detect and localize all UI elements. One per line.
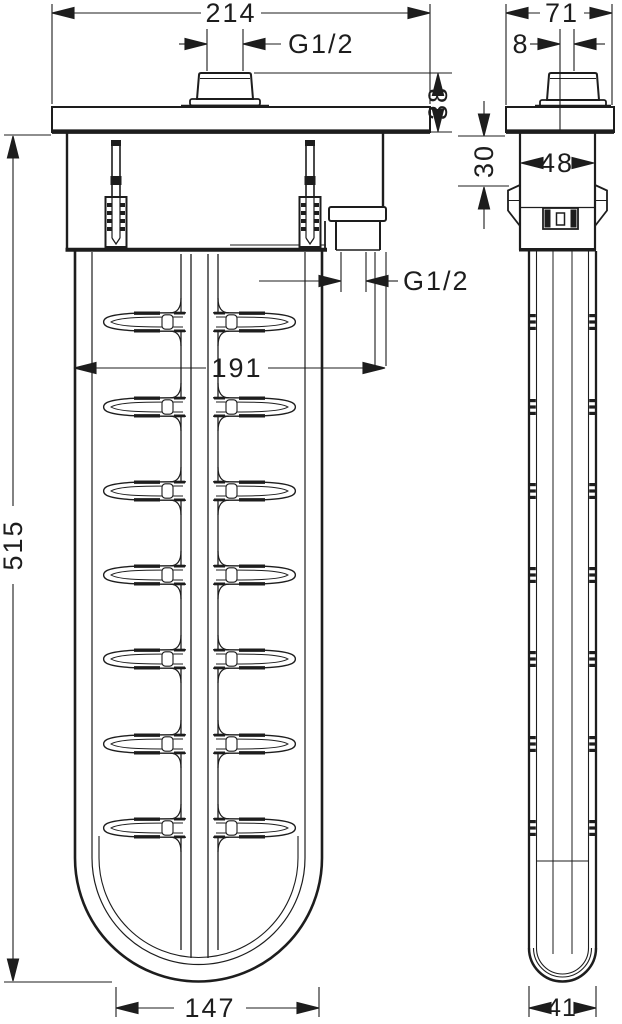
- dim-thread-top-label: G1/2: [288, 29, 355, 59]
- dim-plate-width-side-label: 71: [545, 0, 579, 28]
- dim-button-offset-label: 8: [512, 29, 529, 59]
- dimension-drawing: 214 G1/2 38: [0, 0, 622, 1024]
- dim-shaft-width-label: 41: [547, 994, 577, 1022]
- dim-box-width-label: 191: [211, 353, 262, 383]
- dim-housing-width-label: 48: [540, 148, 574, 178]
- dim-overall-width-label: 214: [205, 0, 256, 28]
- dim-body-width-label: 147: [184, 993, 235, 1023]
- dim-thread-outlet-label: G1/2: [403, 266, 470, 296]
- technical-drawing-page: 214 G1/2 38: [0, 0, 622, 1024]
- dim-mounting-depth-label: 30: [469, 144, 499, 178]
- dim-plate-thickness-label: 38: [423, 86, 453, 120]
- connector-section: [543, 208, 578, 229]
- dim-body-length-label: 515: [0, 519, 28, 570]
